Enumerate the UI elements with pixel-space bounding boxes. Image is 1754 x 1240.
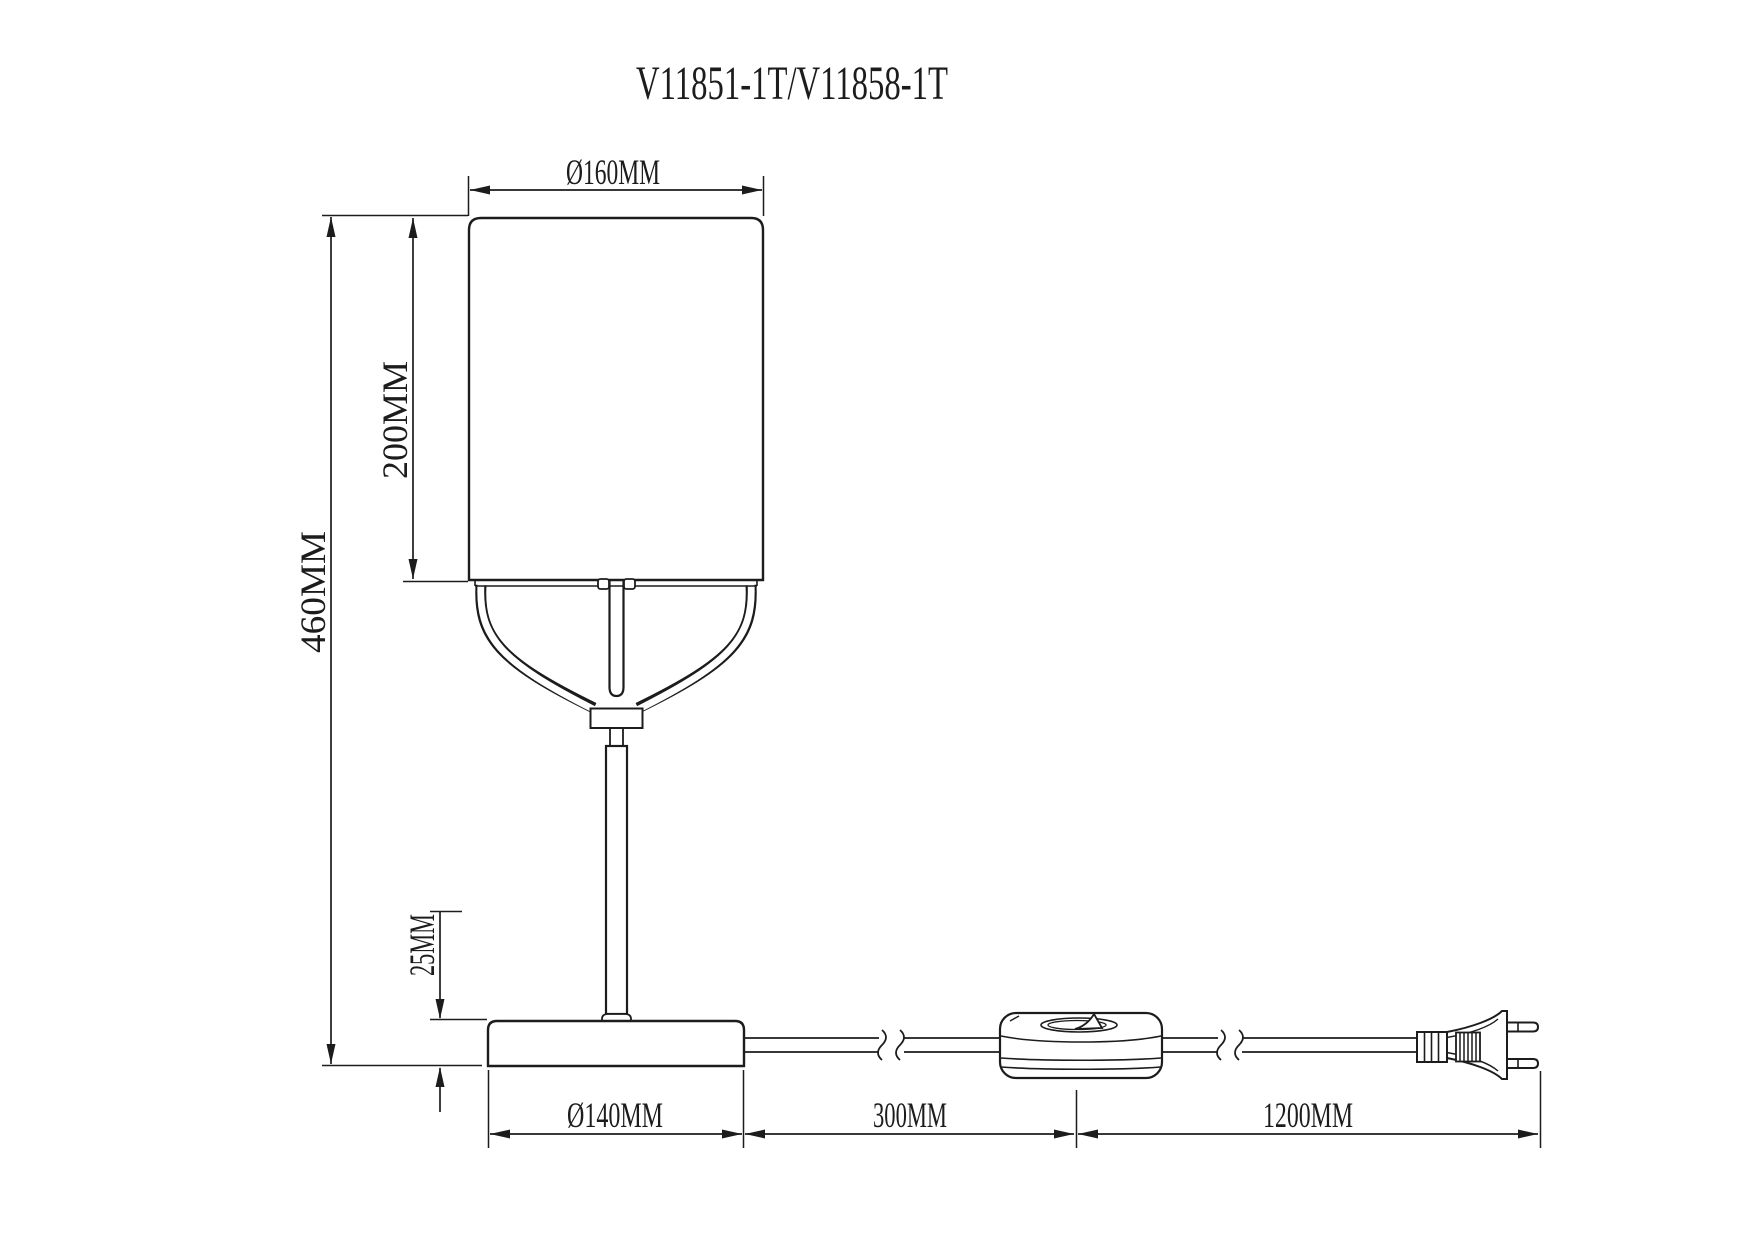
inline-switch (1000, 1013, 1162, 1078)
plug-pin-bottom (1507, 1059, 1538, 1068)
lamp-stem (606, 746, 627, 1014)
dim-total-height: 460MM (293, 217, 336, 1064)
support-arm-right-core (637, 583, 751, 710)
plug-pin-top (1507, 1023, 1538, 1032)
cord-segment-2 (904, 1038, 1001, 1052)
cord-break-1 (878, 1030, 886, 1060)
dim-label-shade-diameter: Ø160MM (566, 152, 660, 192)
cord-break-2 (896, 1030, 904, 1060)
cord-break-4 (1235, 1030, 1243, 1060)
technical-drawing-svg: Ø160MM 200MM 460MM 25MM (0, 0, 1754, 1240)
cord-segment-1 (744, 1038, 879, 1052)
lamp-figure (469, 218, 1538, 1079)
dim-label-base-diameter: Ø140MM (567, 1095, 663, 1135)
rod-nub-left (598, 579, 609, 589)
lamp-shade (469, 218, 763, 580)
dim-label-total-height: 460MM (293, 531, 333, 653)
dim-shade-height: 200MM (375, 218, 418, 579)
drawing-canvas: Ø160MM 200MM 460MM 25MM (0, 0, 1754, 1240)
dim-base-to-switch: 300MM (745, 1095, 1074, 1139)
drawing-title: V11851-1T/V11858-1T (636, 57, 948, 110)
cord-segment-4 (1242, 1038, 1418, 1052)
lamp-base (488, 1021, 744, 1066)
cord-segment-3 (1161, 1038, 1218, 1052)
support-arm-left-core (481, 583, 595, 710)
euro-plug (1417, 1011, 1538, 1079)
dim-label-shade-height: 200MM (375, 361, 415, 479)
dim-shade-diameter: Ø160MM (470, 152, 762, 195)
rod-nub-right (624, 579, 635, 589)
stem-neck (610, 728, 623, 746)
dim-label-base-height: 25MM (402, 914, 442, 976)
cord-break-3 (1217, 1030, 1225, 1060)
dim-label-base-to-switch: 300MM (873, 1095, 947, 1135)
dim-label-cord-length: 1200MM (1263, 1095, 1353, 1135)
fork-collar (591, 709, 643, 729)
dim-base-diameter: Ø140MM (490, 1095, 742, 1139)
dim-cord-length: 1200MM (1078, 1095, 1538, 1139)
dim-base-height: 25MM (402, 911, 445, 1112)
